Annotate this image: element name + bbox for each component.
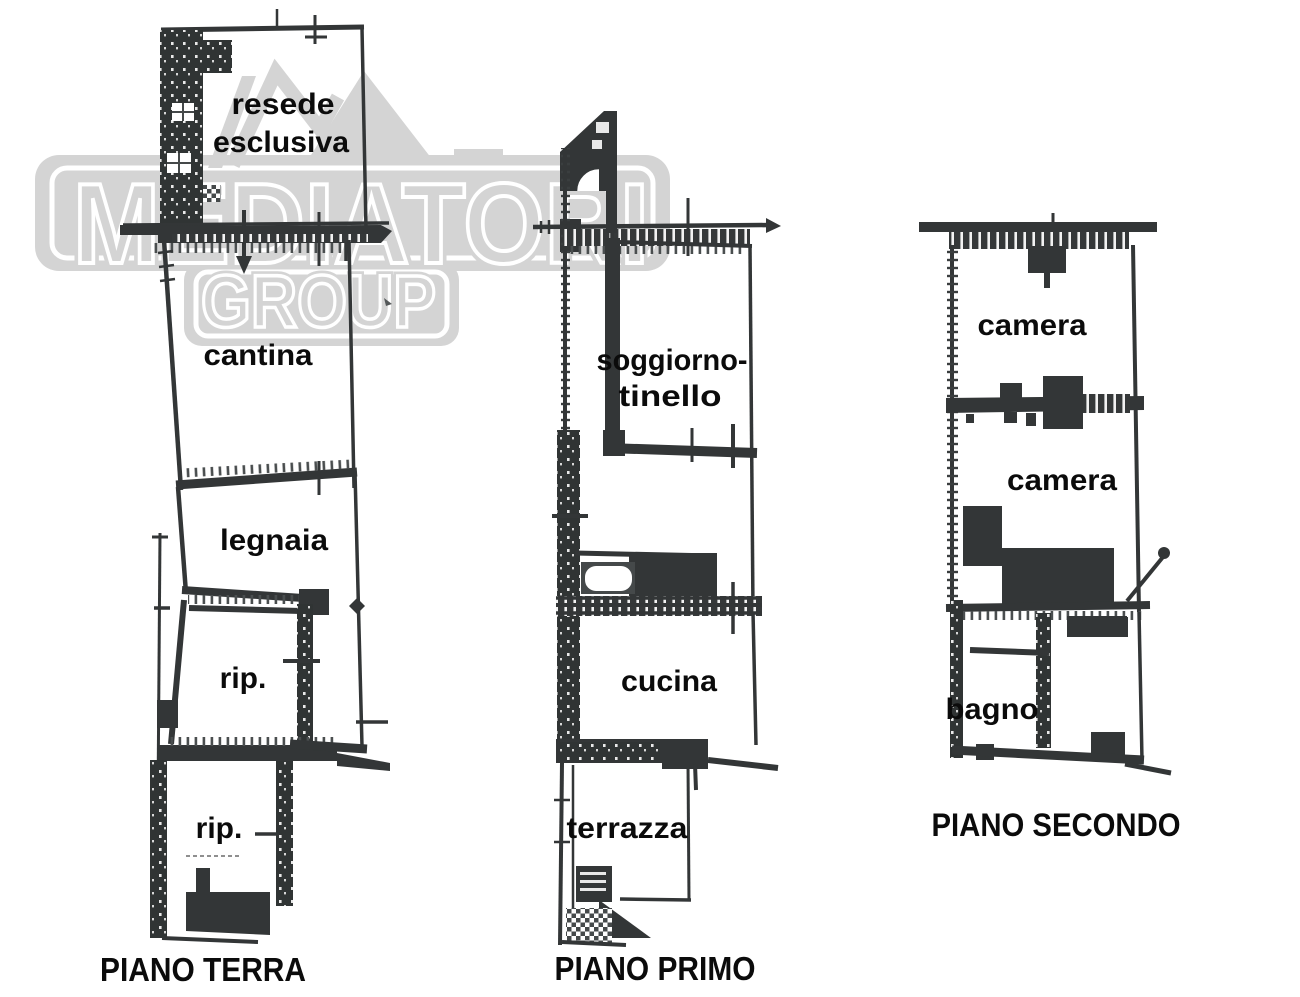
svg-text:PIANO PRIMO: PIANO PRIMO (555, 950, 756, 987)
svg-text:rip.: rip. (220, 662, 267, 695)
svg-text:terrazza: terrazza (567, 812, 688, 845)
svg-text:GROUP: GROUP (201, 260, 436, 343)
svg-text:bagno: bagno (946, 693, 1039, 726)
svg-text:PIANO SECONDO: PIANO SECONDO (932, 807, 1181, 843)
svg-text:soggiorno-: soggiorno- (597, 344, 748, 377)
svg-text:rip.: rip. (196, 812, 243, 845)
svg-text:resede: resede (232, 88, 335, 121)
svg-text:cantina: cantina (204, 339, 313, 372)
svg-text:camera: camera (1007, 464, 1117, 497)
svg-text:tinello: tinello (619, 380, 722, 413)
svg-text:esclusiva: esclusiva (213, 126, 349, 159)
svg-text:camera: camera (978, 309, 1087, 342)
svg-text:PIANO TERRA: PIANO TERRA (100, 951, 306, 988)
svg-text:legnaia: legnaia (220, 524, 328, 557)
svg-text:cucina: cucina (621, 665, 717, 698)
